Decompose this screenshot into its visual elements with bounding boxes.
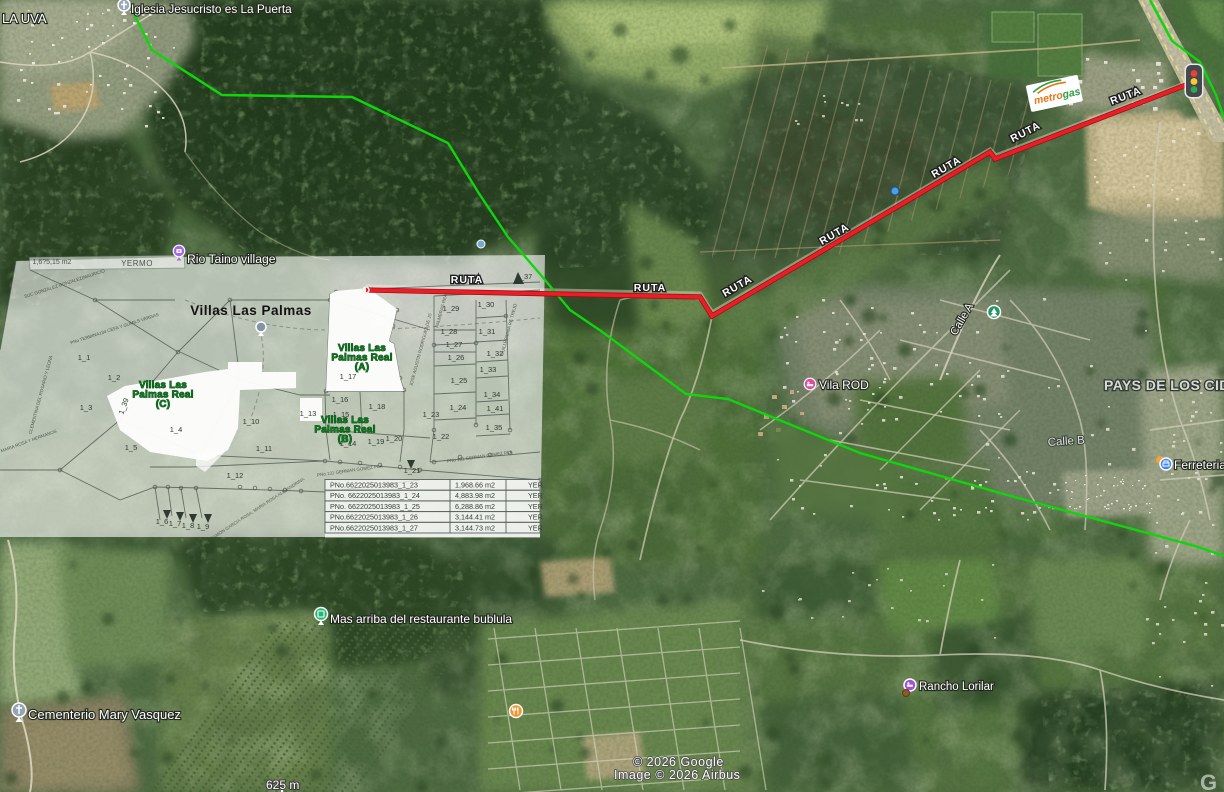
svg-text:PNo.6622025013983_1_27: PNo.6622025013983_1_27: [330, 523, 418, 532]
svg-text:1_16: 1_16: [332, 395, 349, 404]
svg-text:1_35: 1_35: [486, 423, 503, 432]
svg-text:1_27: 1_27: [446, 340, 463, 349]
svg-text:1_26: 1_26: [448, 353, 465, 362]
svg-text:1,6?5,15 m2: 1,6?5,15 m2: [33, 259, 72, 266]
svg-text:YERMO: YERMO: [121, 259, 153, 268]
svg-text:1_28: 1_28: [441, 327, 458, 336]
svg-text:1_12: 1_12: [227, 471, 244, 480]
svg-text:Ferreteria: Ferreteria: [1174, 458, 1224, 472]
svg-text:Cementerio Mary Vasquez: Cementerio Mary Vasquez: [28, 707, 181, 722]
svg-text:PNo. 6622025013983_1_25: PNo. 6622025013983_1_25: [330, 502, 420, 511]
svg-text:Vila ROD: Vila ROD: [819, 378, 869, 392]
svg-text:1_11: 1_11: [256, 444, 272, 453]
svg-text:YER: YER: [528, 523, 543, 532]
svg-text:1_17: 1_17: [340, 372, 357, 381]
svg-text:1_13: 1_13: [300, 409, 317, 418]
svg-text:RUTA: RUTA: [634, 282, 666, 294]
svg-text:1_9: 1_9: [197, 522, 210, 531]
svg-text:1_4: 1_4: [170, 425, 183, 434]
svg-text:G: G: [1200, 770, 1217, 792]
svg-text:3,144.73 m2: 3,144.73 m2: [455, 523, 495, 532]
svg-text:PAYS DE LOS CIDR: PAYS DE LOS CIDR: [1104, 377, 1224, 393]
svg-text:1_1: 1_1: [78, 353, 91, 362]
svg-text:1_8: 1_8: [182, 521, 195, 530]
svg-text:1_6: 1_6: [156, 517, 169, 526]
svg-text:1_22: 1_22: [433, 432, 450, 441]
svg-text:625 m: 625 m: [266, 778, 299, 792]
svg-text:Mas arriba del restaurante bub: Mas arriba del restaurante bublula: [330, 612, 512, 626]
svg-text:RUTA: RUTA: [451, 274, 483, 286]
svg-text:1_41: 1_41: [487, 404, 504, 413]
svg-text:1_3: 1_3: [80, 403, 93, 412]
svg-text:1_33: 1_33: [480, 365, 497, 374]
svg-text:1_5: 1_5: [125, 443, 138, 452]
svg-text:1_7: 1_7: [169, 519, 182, 528]
svg-text:1_2: 1_2: [108, 373, 121, 382]
svg-text:1_23: 1_23: [423, 410, 440, 419]
svg-text:1_25: 1_25: [451, 376, 468, 385]
svg-text:Rancho Lorilar: Rancho Lorilar: [919, 681, 994, 693]
svg-text:YER: YER: [528, 481, 543, 490]
svg-text:4,883.98 m2: 4,883.98 m2: [455, 491, 495, 500]
svg-text:1_18: 1_18: [369, 402, 386, 411]
svg-text:© 2026 Google: © 2026 Google: [633, 755, 724, 769]
svg-text:1_10: 1_10: [243, 417, 260, 426]
svg-text:1_19: 1_19: [368, 437, 385, 446]
svg-text:Rio Taino village: Rio Taino village: [187, 252, 276, 266]
svg-text:Villas Las Palmas: Villas Las Palmas: [190, 303, 312, 318]
svg-text:6,288.86 m2: 6,288.86 m2: [455, 502, 495, 511]
svg-text:PNo. 6622025013983_1_24: PNo. 6622025013983_1_24: [330, 491, 420, 500]
svg-text:YER: YER: [528, 513, 543, 522]
svg-text:Image © 2026 Airbus: Image © 2026 Airbus: [614, 768, 740, 782]
svg-text:1_24: 1_24: [450, 403, 467, 412]
svg-text:1_21: 1_21: [404, 466, 421, 475]
svg-text:1,968.66 m2: 1,968.66 m2: [455, 481, 495, 490]
svg-text:LA UVA: LA UVA: [2, 11, 47, 26]
svg-text:1_20: 1_20: [386, 434, 403, 443]
svg-text:YER: YER: [528, 491, 543, 500]
svg-text:1_31: 1_31: [479, 327, 496, 336]
svg-text:Iglesia Jesucristo es La Puert: Iglesia Jesucristo es La Puerta: [131, 2, 292, 16]
svg-text:PNo.6622025013983_1_26: PNo.6622025013983_1_26: [330, 513, 418, 522]
svg-text:YER: YER: [528, 502, 543, 511]
svg-text:PNo.6622025013983_1_23: PNo.6622025013983_1_23: [330, 481, 418, 490]
svg-text:1_34: 1_34: [484, 390, 501, 399]
svg-text:3,144.41 m2: 3,144.41 m2: [455, 513, 495, 522]
svg-text:1_30: 1_30: [478, 300, 495, 309]
